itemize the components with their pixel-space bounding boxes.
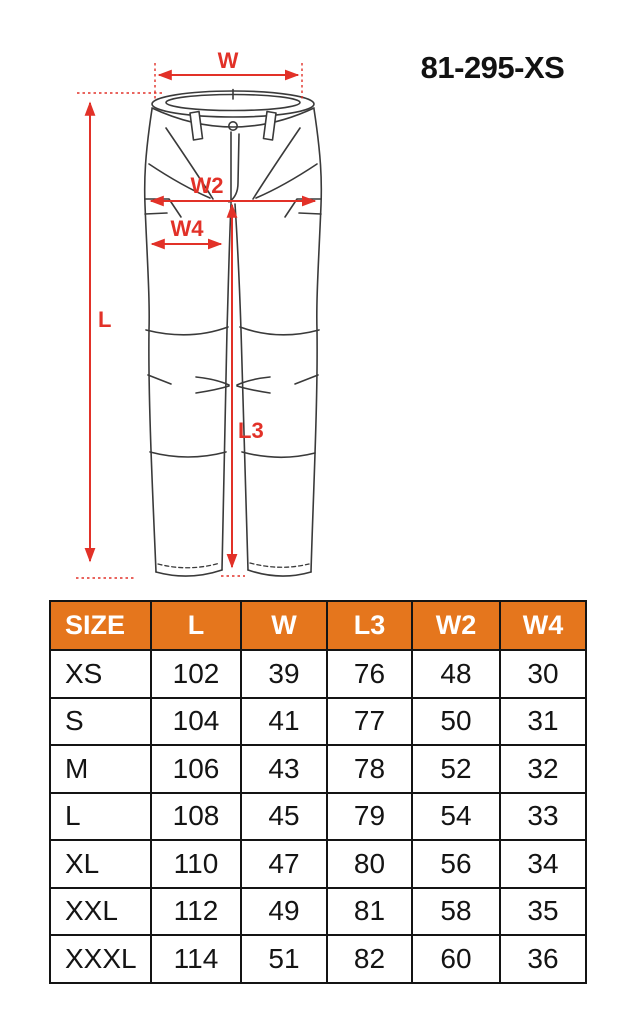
value-l3: 77 [327,698,412,746]
table-row-xxxl: XXXL 114 51 82 60 36 [50,935,586,983]
value-w2: 60 [412,935,500,983]
value-l: 112 [151,888,241,936]
table-row-s: S 104 41 77 50 31 [50,698,586,746]
leg-right-outer [311,109,321,572]
value-l3: 80 [327,840,412,888]
size-label: M [50,745,151,793]
value-w2: 54 [412,793,500,841]
value-w: 43 [241,745,327,793]
value-w4: 34 [500,840,586,888]
knee-seam-left [146,327,228,335]
hem-right-stitch [250,563,309,567]
value-w: 39 [241,650,327,698]
dim-label-l: L [98,307,111,332]
header-l: L [151,601,241,650]
value-w: 45 [241,793,327,841]
size-table-header-row: SIZE L W L3 W2 W4 [50,601,586,650]
value-w: 49 [241,888,327,936]
value-w4: 32 [500,745,586,793]
value-l3: 78 [327,745,412,793]
table-row-xxl: XXL 112 49 81 58 35 [50,888,586,936]
value-w: 47 [241,840,327,888]
side-tick-right [295,375,318,384]
value-l: 104 [151,698,241,746]
size-label: L [50,793,151,841]
value-l3: 82 [327,935,412,983]
value-w2: 48 [412,650,500,698]
chevron-left [196,377,229,393]
value-w2: 50 [412,698,500,746]
size-label: XXL [50,888,151,936]
value-w4: 31 [500,698,586,746]
value-l3: 81 [327,888,412,936]
leg-left-outer [145,109,156,572]
size-label: XS [50,650,151,698]
value-l: 108 [151,793,241,841]
value-w: 51 [241,935,327,983]
knee-seam-right [240,327,319,335]
value-l3: 76 [327,650,412,698]
dim-label-w: W [218,48,239,73]
value-w2: 52 [412,745,500,793]
dim-label-w2: W2 [191,173,224,198]
hem-right [248,570,311,576]
waist-button [229,122,237,130]
dim-label-w4: W4 [171,216,205,241]
value-w4: 33 [500,793,586,841]
value-l: 102 [151,650,241,698]
value-l3: 79 [327,793,412,841]
value-w4: 36 [500,935,586,983]
pants-diagram: W L W2 W4 L3 [0,0,632,600]
value-w2: 56 [412,840,500,888]
table-row-xs: XS 102 39 76 48 30 [50,650,586,698]
header-w: W [241,601,327,650]
size-chart-page: 81-295-XS [0,0,632,1024]
value-w: 41 [241,698,327,746]
table-row-m: M 106 43 78 52 32 [50,745,586,793]
size-label: XL [50,840,151,888]
table-row-xl: XL 110 47 80 56 34 [50,840,586,888]
shin-seam-left [150,452,226,457]
value-l: 110 [151,840,241,888]
side-tick-left [148,375,171,384]
header-w4: W4 [500,601,586,650]
value-w4: 35 [500,888,586,936]
header-w2: W2 [412,601,500,650]
table-row-l: L 108 45 79 54 33 [50,793,586,841]
size-table: SIZE L W L3 W2 W4 XS 102 39 76 48 30 S 1… [49,600,587,984]
value-w2: 58 [412,888,500,936]
value-l: 106 [151,745,241,793]
shin-seam-right [242,452,315,457]
hem-left-stitch [158,563,220,568]
size-label: XXXL [50,935,151,983]
header-size: SIZE [50,601,151,650]
value-l: 114 [151,935,241,983]
dim-label-l3: L3 [238,418,264,443]
value-w4: 30 [500,650,586,698]
size-label: S [50,698,151,746]
hem-left [156,570,222,576]
header-l3: L3 [327,601,412,650]
